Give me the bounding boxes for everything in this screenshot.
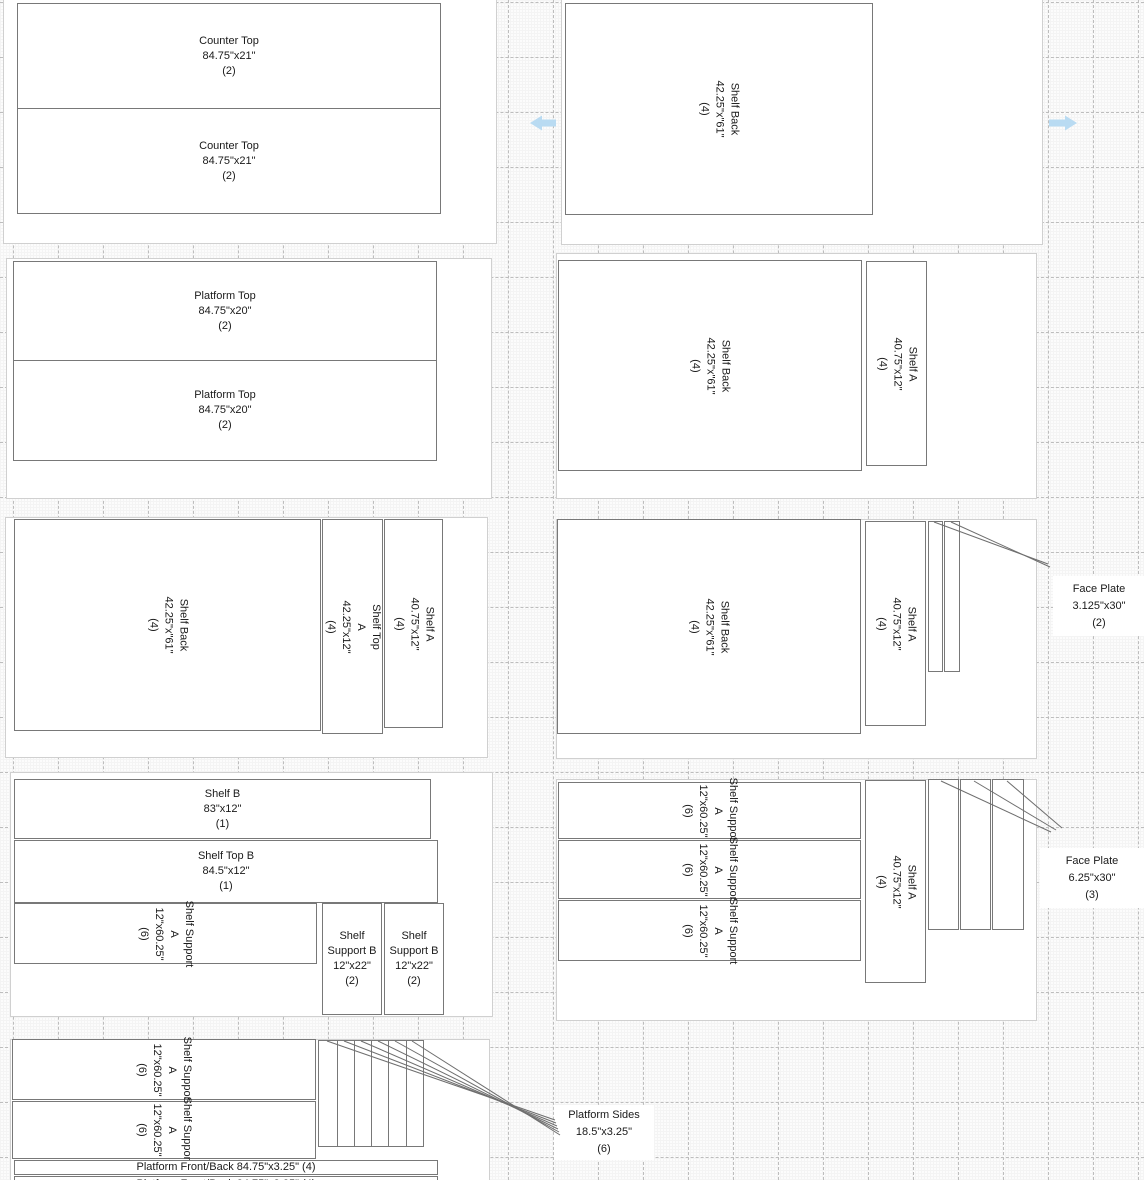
part-label: Shelf Support A12"x60.25"(6)	[121, 899, 211, 969]
part-shelf-back-1[interactable]: Shelf Back42.25"x"61"(4)	[565, 3, 873, 215]
part-platform-front-back-2[interactable]: Platform Front/Back 84.75"x3.25" (4)	[14, 1176, 438, 1180]
part-label: Shelf Support A12"x60.25"(6)	[665, 896, 755, 966]
part-label: Shelf Support A12"x60.25"(6)	[119, 1035, 209, 1105]
part-shelf-back-4[interactable]: Shelf Back42.25"x"61"(4)	[557, 519, 861, 734]
part-shelf-top-b[interactable]: Shelf Top B84.5"x12"(1)	[14, 840, 438, 903]
cut-layout-canvas: Counter Top84.75"x21"(2) Counter Top84.7…	[0, 0, 1144, 1180]
part-shelf-top-a-1[interactable]: Shelf Top A42.25"x12"(4)	[322, 519, 383, 734]
annotation-label: Face Plate3.125"x30"(2)	[1072, 564, 1125, 649]
part-platform-top-2[interactable]: Platform Top84.75"x20"(2)	[13, 360, 437, 461]
face-plate-large-annotation[interactable]: Face Plate6.25"x30"(3)	[1040, 848, 1144, 908]
part-platform-top-1[interactable]: Platform Top84.75"x20"(2)	[13, 261, 437, 361]
part-platform-side-3[interactable]	[354, 1040, 372, 1147]
face-plate-small-annotation[interactable]: Face Plate3.125"x30"(2)	[1053, 576, 1144, 636]
part-shelf-back-2[interactable]: Shelf Back42.25"x"61"(4)	[558, 260, 862, 471]
part-label: Shelf A40.75"x12"(4)	[858, 597, 933, 650]
part-shelf-support-b-2[interactable]: Shelf Support B12"x22"(2)	[384, 903, 444, 1015]
part-label: Platform Front/Back 84.75"x3.25" (4)	[137, 1165, 316, 1180]
part-shelf-a-3[interactable]: Shelf A40.75"x12"(4)	[865, 521, 926, 726]
part-shelf-a-4[interactable]: Shelf A40.75"x12"(4)	[865, 780, 926, 983]
part-platform-side-1[interactable]	[318, 1040, 338, 1147]
part-label: Shelf A40.75"x12"(4)	[376, 597, 451, 650]
part-platform-side-6[interactable]	[406, 1040, 424, 1147]
part-label: Shelf Support A12"x60.25"(6)	[665, 835, 755, 905]
part-face-plate-large-2[interactable]	[960, 779, 991, 930]
part-shelf-support-a-4[interactable]: Shelf Support A12"x60.25"(6)	[558, 900, 861, 961]
part-label: Shelf Support B12"x22"(2)	[323, 914, 381, 1004]
page-break-line-v	[1048, 0, 1049, 1180]
part-counter-top-2[interactable]: Counter Top84.75"x21"(2)	[17, 108, 441, 214]
part-label: Counter Top84.75"x21"(2)	[199, 124, 259, 199]
part-label: Shelf A40.75"x12"(4)	[858, 855, 933, 908]
part-label: Shelf Back42.25"x"61"(4)	[682, 81, 757, 138]
annotation-label: Face Plate6.25"x30"(3)	[1066, 836, 1119, 921]
part-shelf-a-1[interactable]: Shelf A40.75"x12"(4)	[866, 261, 927, 466]
part-label: Platform Top84.75"x20"(2)	[194, 373, 256, 448]
page-break-line-v	[508, 0, 509, 1180]
part-label: Shelf Back42.25"x"61"(4)	[130, 597, 205, 654]
part-platform-side-4[interactable]	[371, 1040, 389, 1147]
part-platform-side-5[interactable]	[388, 1040, 407, 1147]
part-label: Counter Top84.75"x21"(2)	[199, 19, 259, 94]
part-shelf-support-b-1[interactable]: Shelf Support B12"x22"(2)	[322, 903, 382, 1015]
part-face-plate-small-1[interactable]	[928, 521, 943, 672]
part-label: Shelf Top B84.5"x12"(1)	[198, 834, 254, 909]
part-face-plate-large-1[interactable]	[928, 779, 959, 930]
part-label: Platform Top84.75"x20"(2)	[194, 274, 256, 349]
part-shelf-a-2[interactable]: Shelf A40.75"x12"(4)	[384, 519, 443, 728]
part-label: Shelf Back42.25"x"61"(4)	[672, 598, 747, 655]
part-label: Shelf Support B12"x22"(2)	[385, 914, 443, 1004]
part-shelf-back-3[interactable]: Shelf Back42.25"x"61"(4)	[14, 519, 321, 731]
part-label: Shelf Back42.25"x"61"(4)	[673, 337, 748, 394]
part-shelf-support-a-3[interactable]: Shelf Support A12"x60.25"(6)	[558, 840, 861, 899]
part-shelf-support-a-2[interactable]: Shelf Support A12"x60.25"(6)	[558, 782, 861, 839]
page-break-line-v	[553, 0, 554, 1180]
part-platform-side-2[interactable]	[337, 1040, 355, 1147]
platform-sides-annotation[interactable]: Platform Sides18.5"x3.25"(6)	[554, 1105, 654, 1160]
part-face-plate-small-2[interactable]	[944, 521, 960, 672]
part-shelf-support-a-5[interactable]: Shelf Support A12"x60.25"(6)	[12, 1039, 316, 1100]
part-shelf-b[interactable]: Shelf B83"x12"(1)	[14, 779, 431, 839]
part-counter-top-1[interactable]: Counter Top84.75"x21"(2)	[17, 3, 441, 109]
part-shelf-support-a-1[interactable]: Shelf Support A12"x60.25"(6)	[14, 903, 317, 964]
part-label: Shelf A40.75"x12"(4)	[859, 337, 934, 390]
part-face-plate-large-3[interactable]	[992, 779, 1024, 930]
annotation-label: Platform Sides18.5"x3.25"(6)	[568, 1090, 640, 1175]
